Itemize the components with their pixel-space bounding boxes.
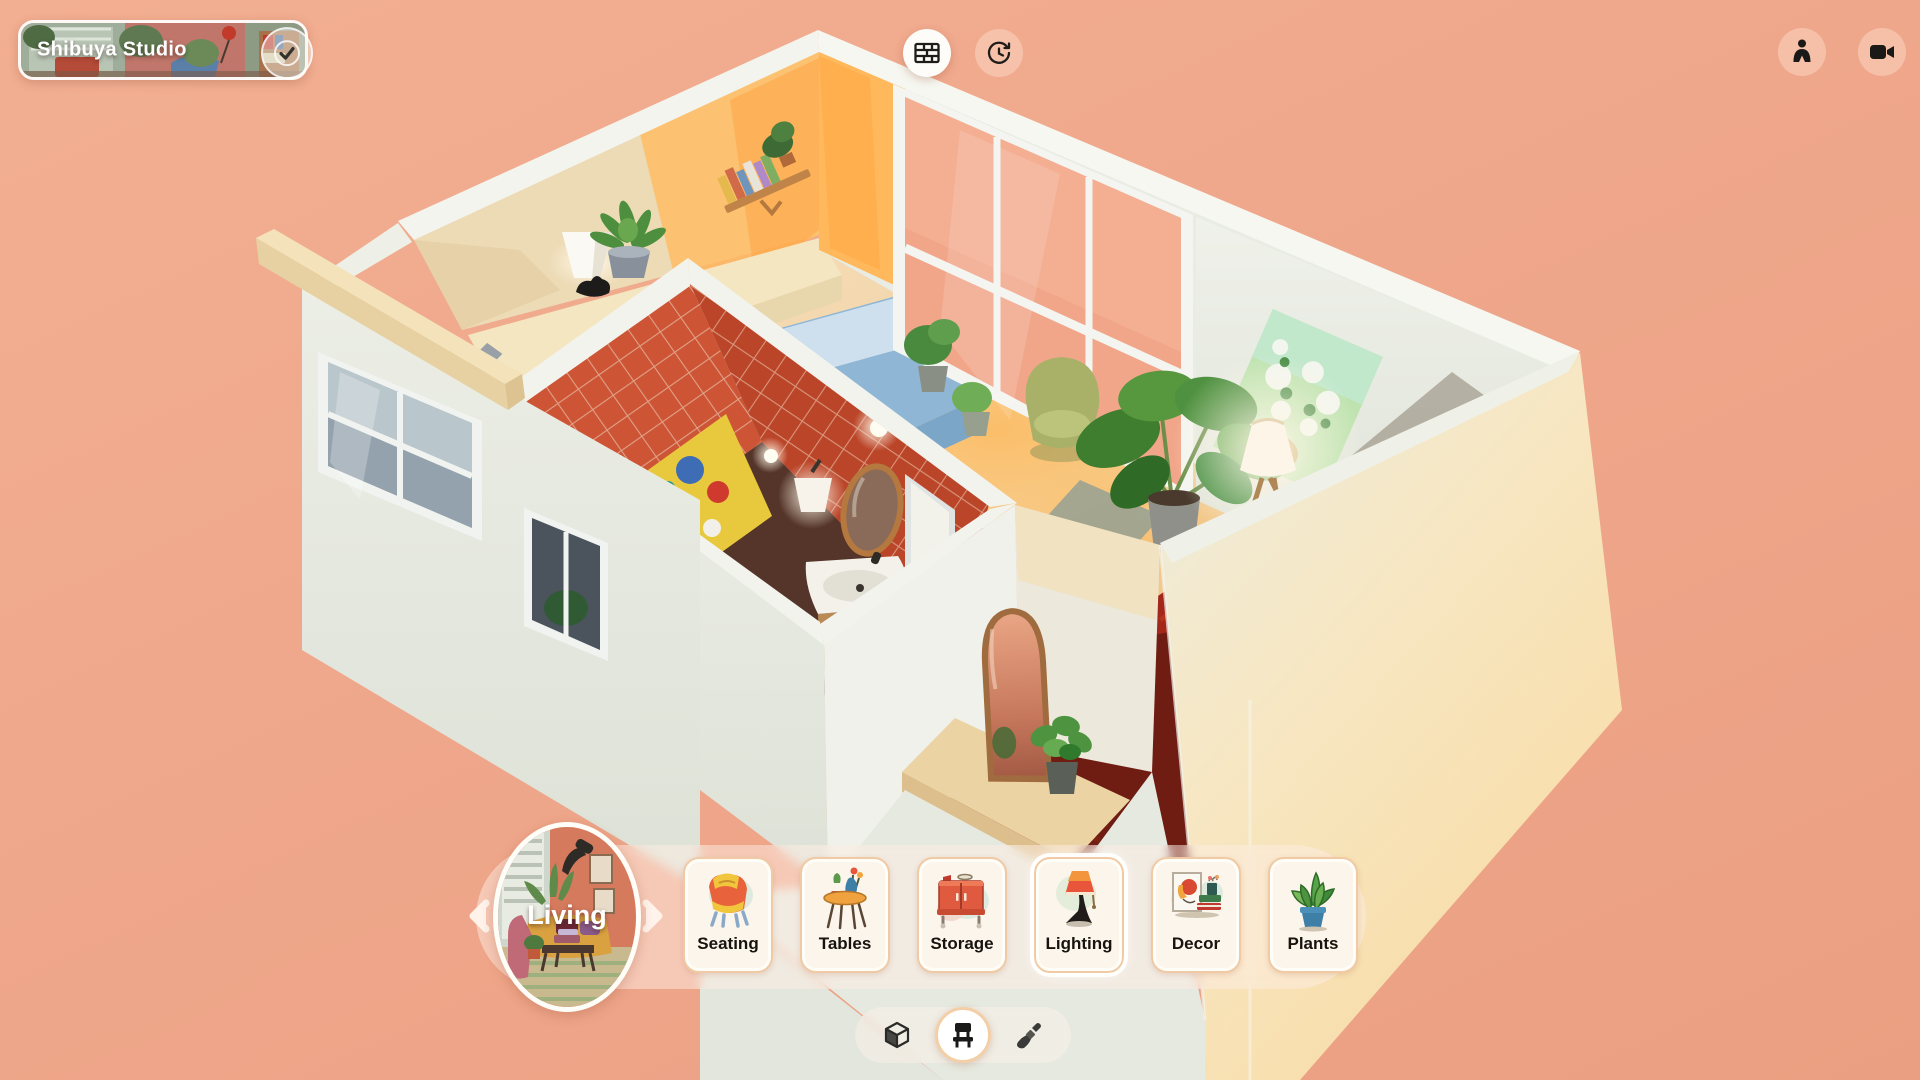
carousel-next-arrow[interactable] (640, 898, 666, 934)
person-view-button[interactable] (1778, 28, 1826, 76)
room-chip[interactable]: Shibuya Studio (18, 20, 308, 80)
category-label: Storage (930, 934, 993, 954)
category-label: Tables (819, 934, 872, 954)
frame-and-books-illustration (1165, 865, 1227, 933)
person-icon (1789, 38, 1815, 66)
mode-toolbar (855, 1007, 1071, 1063)
category-seating[interactable]: Seating (683, 857, 773, 973)
brick-wall-icon (913, 39, 941, 67)
cabinet-illustration (931, 865, 993, 933)
app-stage: Shibuya Studio (0, 0, 1920, 1080)
build-mode-button[interactable] (877, 1015, 917, 1055)
walls-button[interactable] (903, 29, 951, 77)
category-tables[interactable]: Tables (800, 857, 890, 973)
category-plants[interactable]: Plants (1268, 857, 1358, 973)
check-badge[interactable] (261, 27, 313, 79)
paintbrush-icon (1015, 1021, 1043, 1049)
category-label: Plants (1287, 934, 1338, 954)
history-clock-icon (985, 39, 1013, 67)
potted-plant-illustration (1282, 865, 1344, 933)
furnish-mode-button[interactable] (935, 1007, 991, 1063)
table-lamp-illustration (1048, 865, 1110, 933)
category-label: Seating (697, 934, 758, 954)
category-label: Decor (1172, 934, 1220, 954)
carousel-prev-arrow[interactable] (466, 898, 492, 934)
category-decor[interactable]: Decor (1151, 857, 1241, 973)
selected-room-label: Living (498, 900, 636, 931)
video-camera-icon (1868, 40, 1896, 64)
history-button[interactable] (975, 29, 1023, 77)
side-table-illustration (814, 865, 876, 933)
category-lighting[interactable]: Lighting (1034, 857, 1124, 973)
chair-icon (950, 1021, 976, 1049)
camera-view-button[interactable] (1858, 28, 1906, 76)
room-title: Shibuya Studio (37, 39, 187, 62)
armchair-illustration (697, 865, 759, 933)
paint-mode-button[interactable] (1009, 1015, 1049, 1055)
category-storage[interactable]: Storage (917, 857, 1007, 973)
selected-room-thumbnail[interactable]: Living (493, 822, 641, 1012)
cube-icon (884, 1021, 910, 1049)
category-label: Lighting (1045, 934, 1112, 954)
check-icon (274, 40, 300, 66)
